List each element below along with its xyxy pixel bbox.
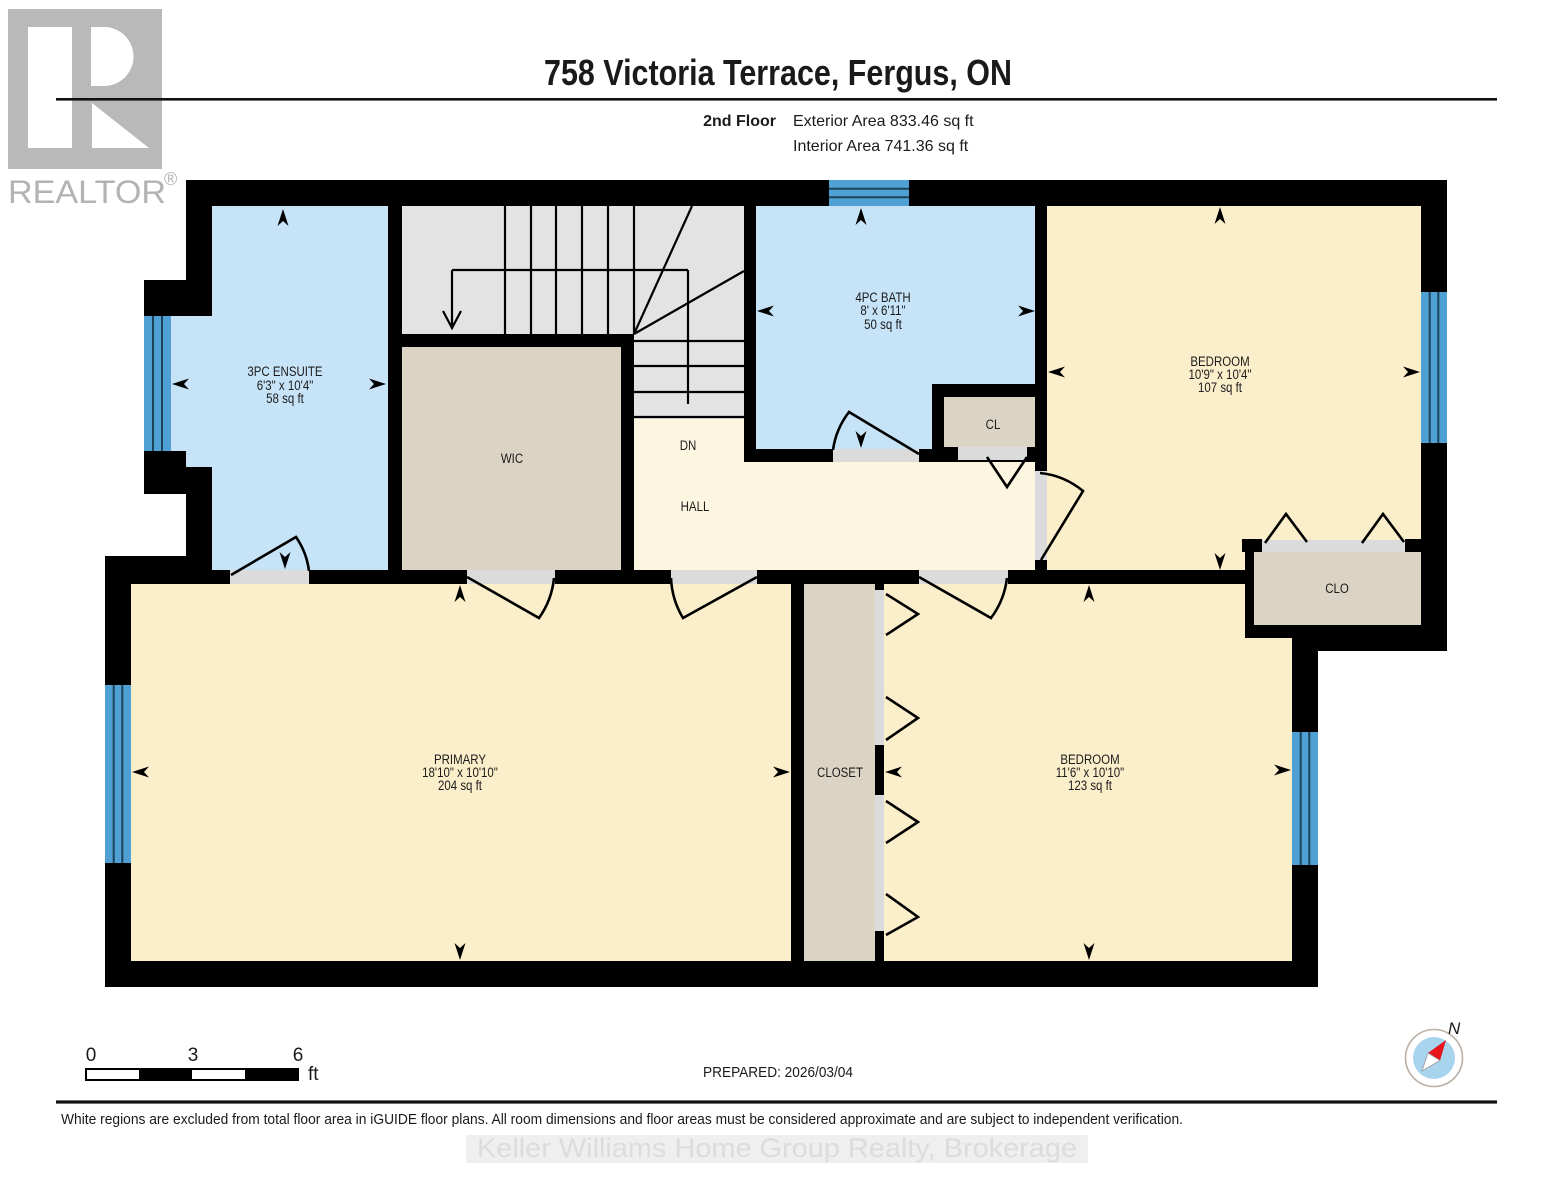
svg-text:3PC ENSUITE: 3PC ENSUITE <box>247 364 322 379</box>
svg-text:3: 3 <box>188 1045 199 1066</box>
svg-text:0: 0 <box>86 1045 97 1066</box>
svg-text:DN: DN <box>680 438 697 453</box>
svg-text:50 sq ft: 50 sq ft <box>864 317 902 332</box>
svg-text:8' x 6'11": 8' x 6'11" <box>860 303 905 318</box>
svg-text:ft: ft <box>308 1064 319 1085</box>
svg-text:CLOSET: CLOSET <box>817 765 863 780</box>
svg-text:CLO: CLO <box>1325 581 1349 596</box>
svg-text:58 sq ft: 58 sq ft <box>266 391 304 406</box>
svg-text:6: 6 <box>293 1045 304 1066</box>
svg-text:204 sq ft: 204 sq ft <box>438 778 482 793</box>
svg-text:Exterior Area 833.46 sq ft: Exterior Area 833.46 sq ft <box>793 113 974 130</box>
svg-text:Keller Williams Home Group Rea: Keller Williams Home Group Realty, Broke… <box>477 1133 1077 1163</box>
svg-text:107 sq ft: 107 sq ft <box>1198 380 1242 395</box>
svg-text:White regions are excluded fro: White regions are excluded from total fl… <box>61 1112 1183 1128</box>
svg-text:PREPARED: 2026/03/04: PREPARED: 2026/03/04 <box>703 1064 853 1081</box>
svg-text:WIC: WIC <box>501 451 524 466</box>
svg-text:HALL: HALL <box>681 499 710 514</box>
svg-text:758 Victoria Terrace, Fergus,: 758 Victoria Terrace, Fergus, ON <box>544 52 1012 93</box>
svg-text:2nd Floor: 2nd Floor <box>703 113 776 130</box>
svg-text:®: ® <box>164 169 177 189</box>
svg-text:REALTOR: REALTOR <box>8 174 166 210</box>
svg-text:123 sq ft: 123 sq ft <box>1068 778 1112 793</box>
svg-text:Interior Area 741.36 sq ft: Interior Area 741.36 sq ft <box>793 138 969 155</box>
svg-text:N: N <box>1448 1019 1461 1038</box>
svg-text:CL: CL <box>986 417 1001 432</box>
